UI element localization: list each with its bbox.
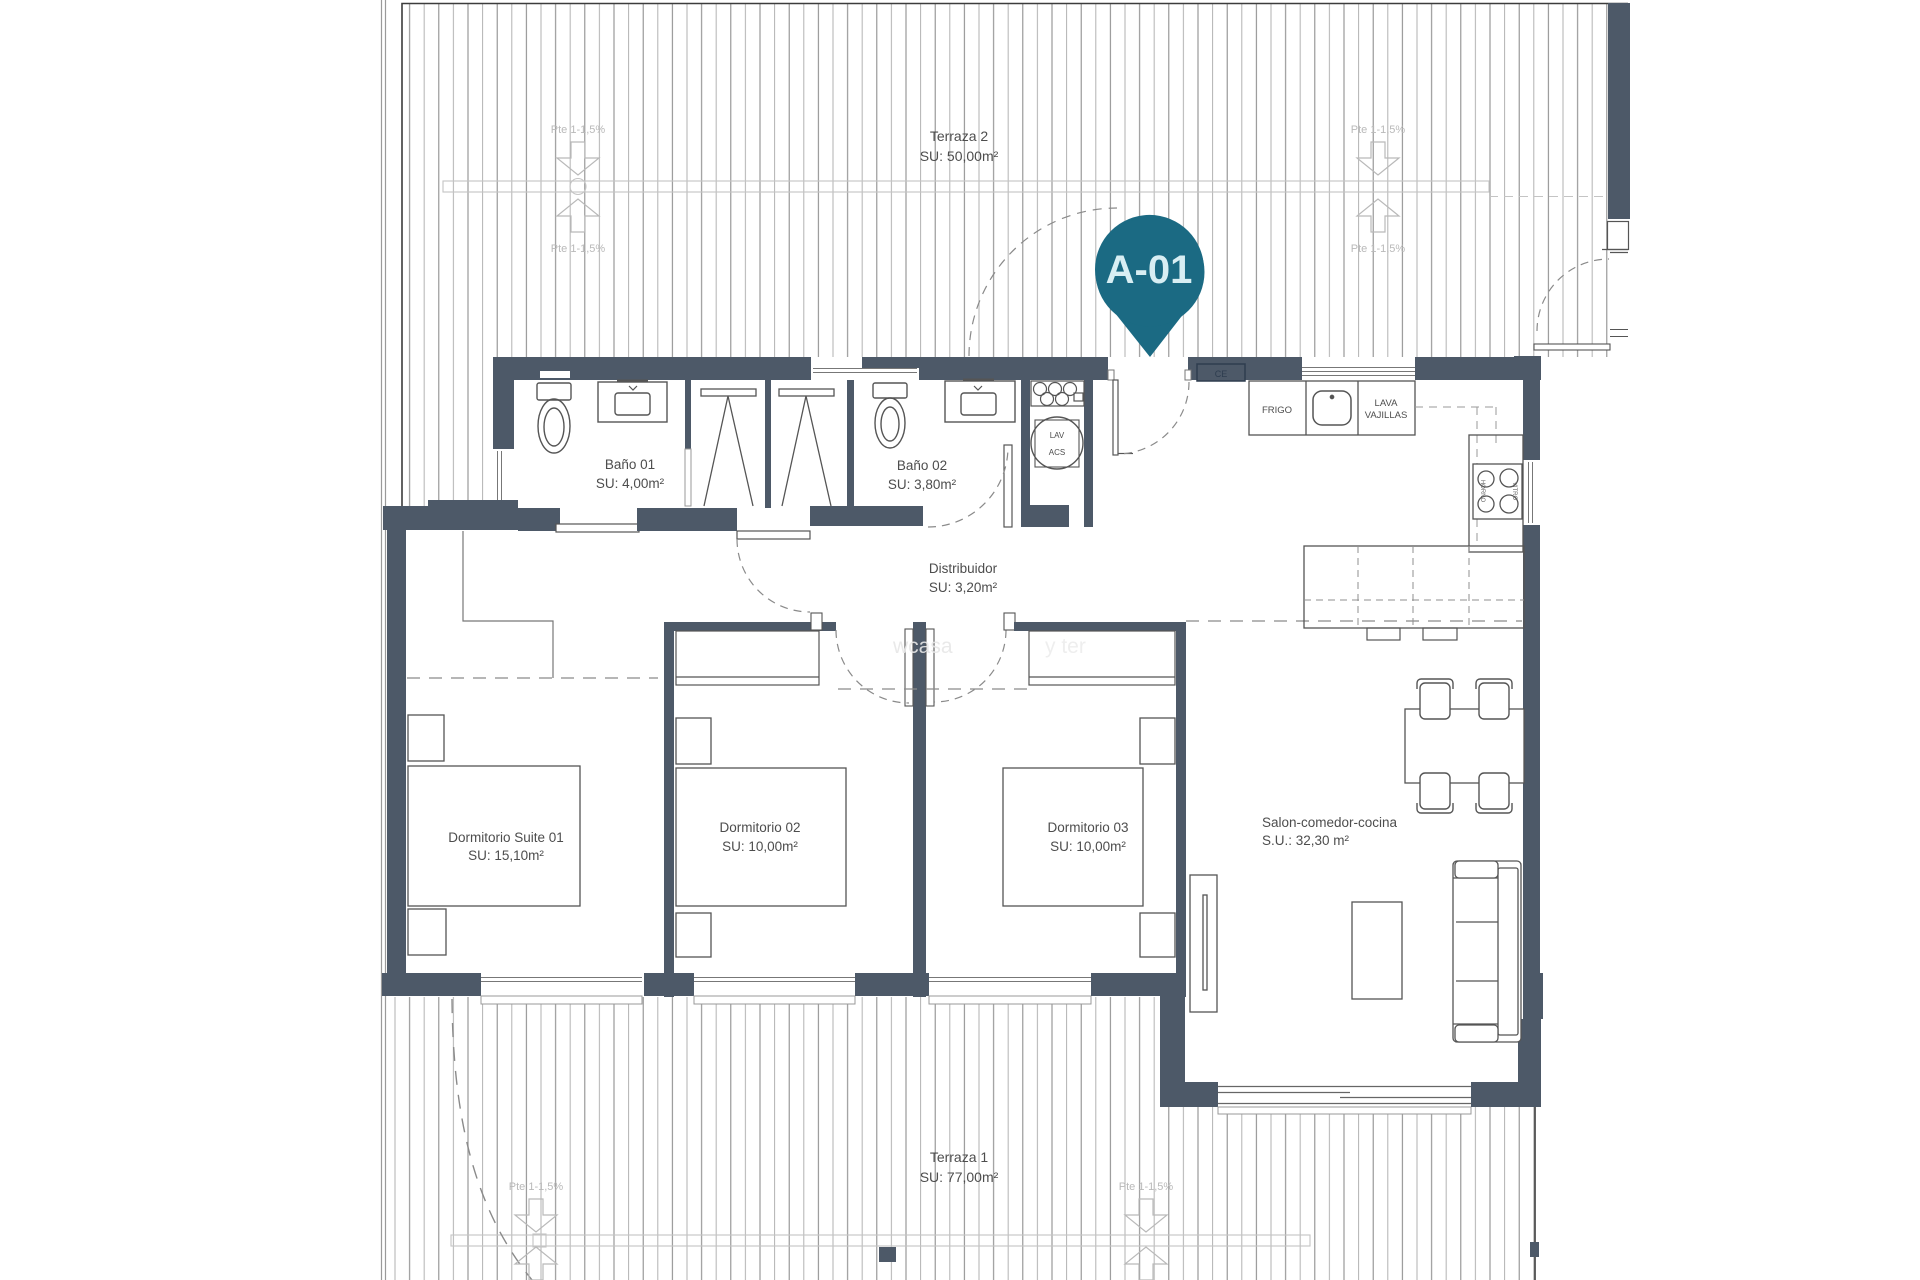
svg-text:Pte 1-1,5%: Pte 1-1,5% xyxy=(551,243,606,255)
svg-text:Pte 1-1,5%: Pte 1-1,5% xyxy=(1351,243,1406,255)
svg-text:HORNO: HORNO xyxy=(1479,480,1485,503)
svg-text:A-01: A-01 xyxy=(1106,248,1193,292)
svg-text:LAV: LAV xyxy=(1050,431,1065,440)
svg-text:Pte 1-1,5%: Pte 1-1,5% xyxy=(509,1181,564,1193)
svg-text:Baño 02: Baño 02 xyxy=(897,458,947,473)
svg-text:Terraza 1: Terraza 1 xyxy=(930,1149,989,1165)
svg-text:Pte 1-1,5%: Pte 1-1,5% xyxy=(1119,1181,1174,1193)
svg-text:CE: CE xyxy=(1215,369,1228,379)
svg-text:Pte 1-1,5%: Pte 1-1,5% xyxy=(1351,124,1406,136)
svg-text:Distribuidor: Distribuidor xyxy=(929,561,998,576)
svg-text:FRIGO: FRIGO xyxy=(1262,405,1292,416)
svg-text:Dormitorio 03: Dormitorio 03 xyxy=(1047,820,1128,835)
svg-text:SU: 50,00m²: SU: 50,00m² xyxy=(920,148,999,164)
svg-text:Dormitorio Suite 01: Dormitorio Suite 01 xyxy=(448,830,564,845)
svg-text:SU: 77,00m²: SU: 77,00m² xyxy=(920,1169,999,1185)
svg-text:LAVA: LAVA xyxy=(1375,398,1399,409)
svg-text:SU: 3,20m²: SU: 3,20m² xyxy=(929,580,998,595)
svg-text:Dormitorio 02: Dormitorio 02 xyxy=(719,820,800,835)
svg-text:ACS: ACS xyxy=(1049,448,1065,457)
svg-text:Pte 1-1,5%: Pte 1-1,5% xyxy=(551,124,606,136)
svg-text:SU: 10,00m²: SU: 10,00m² xyxy=(1050,839,1126,854)
svg-text:SU: 3,80m²: SU: 3,80m² xyxy=(888,477,957,492)
svg-text:SU: 4,00m²: SU: 4,00m² xyxy=(596,476,665,491)
svg-text:VAJILLAS: VAJILLAS xyxy=(1365,410,1408,421)
svg-text:S.U.: 32,30 m²: S.U.: 32,30 m² xyxy=(1262,833,1350,848)
svg-text:Terraza 2: Terraza 2 xyxy=(930,128,989,144)
svg-text:y ter: y ter xyxy=(1045,635,1086,658)
svg-text:VITRO: VITRO xyxy=(1511,482,1517,501)
svg-text:SU: 15,10m²: SU: 15,10m² xyxy=(468,848,544,863)
svg-text:wcasa: wcasa xyxy=(892,635,953,658)
svg-text:Salon-comedor-cocina: Salon-comedor-cocina xyxy=(1262,815,1398,830)
svg-text:Baño 01: Baño 01 xyxy=(605,457,655,472)
svg-text:SU: 10,00m²: SU: 10,00m² xyxy=(722,839,798,854)
